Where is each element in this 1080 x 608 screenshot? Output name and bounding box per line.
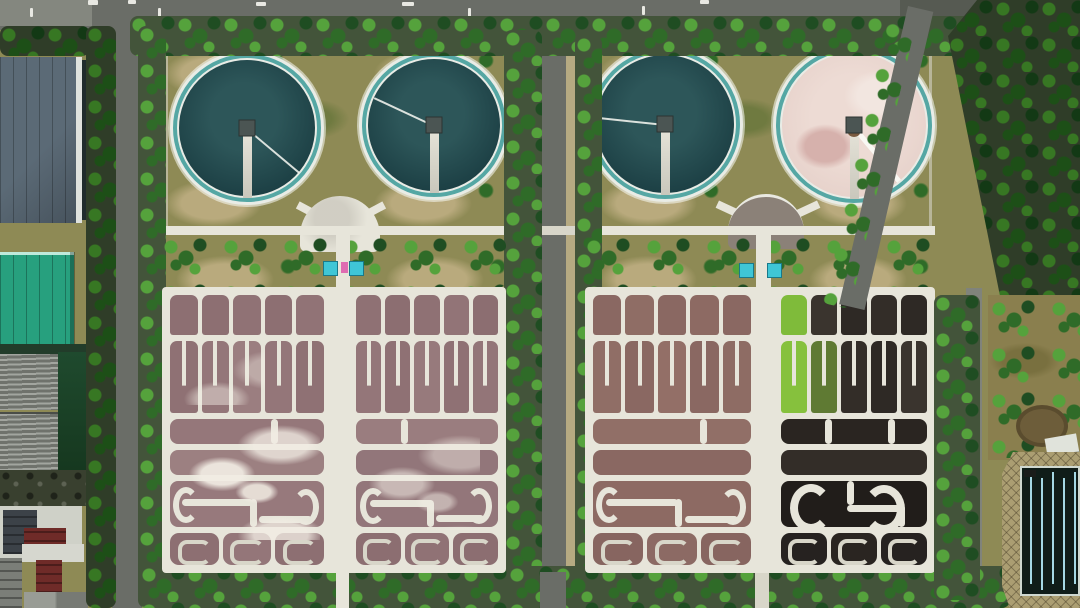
center-mechanism — [239, 120, 256, 137]
access-bridge — [661, 124, 670, 195]
teal-equipment-box — [767, 263, 782, 278]
basin-mid-section — [170, 419, 324, 475]
ditch-u-turn — [173, 487, 199, 523]
basin-cell — [170, 533, 219, 565]
basin-cell — [296, 341, 324, 413]
basin-cell — [593, 341, 621, 413]
basin-cell — [871, 341, 897, 413]
ditch-channel-motif — [888, 539, 920, 564]
basin-half-B — [352, 291, 502, 569]
basin-divider — [888, 419, 895, 444]
ditch-u-turn — [720, 489, 746, 525]
basin-row-bottom — [356, 533, 498, 565]
basin-row-2 — [356, 341, 498, 413]
ditch-channel-motif — [178, 540, 211, 565]
basin-panel — [593, 450, 751, 475]
teal-equipment-box — [739, 263, 754, 278]
basin-divider — [401, 419, 408, 444]
basin-cell — [275, 533, 324, 565]
road-marking — [402, 2, 414, 6]
ditch-u-turn-large — [790, 484, 832, 532]
clarifier-tank-3 — [587, 46, 743, 202]
ditch-channel-motif — [283, 540, 316, 565]
basin-cell — [723, 341, 751, 413]
top-road-light-section — [0, 0, 92, 26]
dense-forest — [948, 0, 1080, 300]
walkway-stem-right — [756, 231, 771, 289]
pool-lane-divider — [1063, 478, 1065, 590]
basin-cell — [202, 295, 230, 335]
basin-row-2 — [170, 341, 324, 413]
ditch-u-turn — [360, 488, 386, 524]
ditch-channel-motif — [601, 540, 635, 565]
pool-lane-divider — [1074, 472, 1076, 584]
basin-cell — [658, 295, 686, 335]
oxidation-ditch-panel — [356, 481, 498, 527]
building-corrugated-roof — [0, 412, 58, 472]
basin-cell — [356, 341, 381, 413]
tree-strip-corridor-west — [504, 30, 542, 608]
ditch-channel-motif — [838, 539, 870, 564]
walkway-stem-left — [336, 233, 350, 289]
basin-cell — [473, 341, 498, 413]
ditch-divider — [250, 499, 257, 527]
pool-equipment-box — [1024, 470, 1036, 477]
basin-mid-section — [356, 419, 498, 475]
basin-row-1 — [356, 295, 498, 335]
basin-cell — [444, 341, 469, 413]
machinery-yard — [0, 470, 96, 506]
ditch-divider — [427, 500, 434, 527]
ditch-channel-motif — [655, 540, 689, 565]
ditch-channel-motif — [411, 539, 442, 564]
basin-half-A — [166, 291, 328, 569]
basin-panel — [170, 419, 324, 444]
ditch-channel-motif — [788, 539, 820, 564]
basin-half-D-dark — [777, 291, 931, 569]
ditch-u-turn — [293, 489, 319, 525]
basin-cell — [625, 341, 653, 413]
basin-cell — [444, 295, 469, 335]
road-marking — [256, 2, 266, 6]
walkway-horizontal-left — [162, 226, 506, 235]
pitched-gray-roof — [24, 592, 88, 608]
pink-marker — [341, 262, 348, 273]
basin-divider — [825, 419, 832, 444]
tree-strip-right — [934, 295, 980, 600]
basin-cell — [593, 533, 643, 565]
basin-cell — [841, 341, 867, 413]
basin-panel — [170, 450, 324, 475]
basin-cell — [233, 295, 261, 335]
basin-cell — [901, 295, 927, 335]
pool-lane-divider — [1041, 478, 1043, 590]
basin-row-2 — [593, 341, 751, 413]
basin-cell — [781, 341, 807, 413]
walkway-stem-bottom-left — [336, 570, 349, 608]
basin-cell — [690, 341, 718, 413]
central-road — [538, 26, 566, 608]
basin-row-bottom — [781, 533, 927, 565]
pool-lane-divider — [1030, 472, 1032, 584]
basin-cell — [625, 295, 653, 335]
basin-cell — [781, 533, 827, 565]
ditch-u-turn — [466, 488, 492, 524]
ditch-channel-motif — [363, 539, 394, 564]
building-teal-metal-roof — [0, 252, 74, 347]
lamp-post — [30, 8, 33, 17]
basin-cell — [356, 295, 381, 335]
basin-panel — [356, 419, 498, 444]
basin-row-1 — [170, 295, 324, 335]
basin-mid-section — [593, 419, 751, 475]
basin-cell — [593, 295, 621, 335]
teal-equipment-box — [349, 261, 364, 276]
road-marking — [128, 0, 136, 4]
basin-panel — [356, 450, 498, 475]
basin-cell — [356, 533, 401, 565]
building-blue-roof-ridges — [0, 57, 80, 223]
basin-cell — [233, 341, 261, 413]
basin-cell — [811, 341, 837, 413]
center-mechanism — [426, 117, 443, 134]
ditch-channel-motif — [709, 540, 743, 565]
building-teal-roof-shadow — [70, 252, 75, 344]
building-corrugated-roof — [0, 354, 58, 410]
basin-block-right — [585, 287, 935, 573]
ditch-divider — [675, 499, 682, 527]
basin-cell — [453, 533, 498, 565]
access-bridge — [430, 125, 439, 193]
ditch-u-turn — [596, 487, 622, 523]
basin-cell — [385, 295, 410, 335]
basin-panel — [781, 450, 927, 475]
walkway-stem-bottom-right — [755, 570, 769, 608]
ribbed-gray-roof — [0, 558, 22, 608]
hedge-top-left — [0, 26, 90, 56]
basin-cell — [265, 295, 293, 335]
basin-block-left — [162, 287, 506, 573]
road-marking — [88, 0, 98, 5]
ditch-divider — [847, 505, 902, 512]
basin-row-bottom — [593, 533, 751, 565]
basin-cell — [647, 533, 697, 565]
ditch-divider — [847, 481, 854, 505]
basin-cell — [723, 295, 751, 335]
central-road-bottom — [540, 572, 566, 608]
oxidation-ditch-panel — [593, 481, 751, 527]
basin-cell — [690, 295, 718, 335]
basin-row-2 — [781, 341, 927, 413]
basin-cell — [170, 295, 198, 335]
basin-cell — [223, 533, 272, 565]
teal-equipment-box — [323, 261, 338, 276]
pool-lane-divider — [1052, 472, 1054, 584]
basin-cell — [701, 533, 751, 565]
aerial-photo-canvas — [0, 0, 1080, 608]
basin-divider — [271, 419, 278, 444]
center-mechanism — [657, 116, 674, 133]
basin-half-C — [589, 291, 755, 569]
basin-panel — [593, 419, 751, 444]
clarifier-tank-2 — [359, 50, 509, 200]
basin-cell — [473, 295, 498, 335]
ditch-channel-motif — [460, 539, 491, 564]
road-marking — [700, 0, 709, 4]
basin-cell — [170, 341, 198, 413]
ditch-divider — [898, 505, 905, 527]
access-bridge — [243, 128, 252, 198]
basin-cell — [781, 295, 807, 335]
basin-cell — [202, 341, 230, 413]
contact-pool-water — [1020, 466, 1080, 596]
basin-cell — [414, 341, 439, 413]
oxidation-ditch-panel — [170, 481, 324, 527]
basin-cell — [658, 341, 686, 413]
basin-cell — [881, 533, 927, 565]
basin-divider — [700, 419, 707, 444]
basin-cell — [871, 295, 897, 335]
oxidation-ditch-panel-dark — [781, 481, 927, 527]
basin-mid-section — [781, 419, 927, 475]
basin-row-bottom — [170, 533, 324, 565]
basin-cell — [831, 533, 877, 565]
basin-row-1 — [593, 295, 751, 335]
basin-cell — [414, 295, 439, 335]
basin-cell — [901, 341, 927, 413]
basin-cell — [296, 295, 324, 335]
clarifier-tank-1 — [170, 51, 324, 205]
basin-cell — [265, 341, 293, 413]
lamp-post — [642, 6, 645, 15]
tree-strip-left-outer — [86, 26, 116, 608]
ditch-channel-motif — [230, 540, 263, 565]
basin-panel — [781, 419, 927, 444]
basin-cell — [385, 341, 410, 413]
basin-cell — [405, 533, 450, 565]
